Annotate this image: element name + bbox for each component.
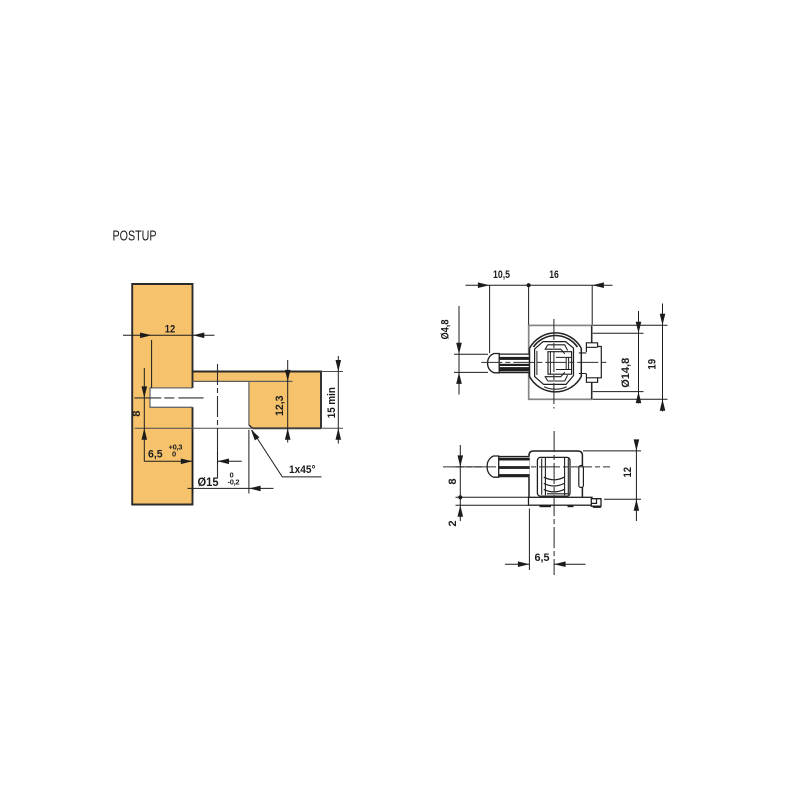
svg-text:10,5: 10,5	[493, 269, 510, 281]
svg-text:12,3: 12,3	[274, 395, 286, 416]
svg-text:16: 16	[549, 269, 559, 281]
svg-text:Ø14,8: Ø14,8	[620, 358, 632, 388]
svg-text:15 min: 15 min	[326, 387, 338, 418]
svg-text:-0,2: -0,2	[228, 478, 240, 487]
svg-text:6,5: 6,5	[535, 552, 550, 564]
svg-text:Ø15: Ø15	[198, 475, 219, 489]
svg-text:0: 0	[172, 450, 176, 459]
svg-text:1x45°: 1x45°	[289, 464, 316, 476]
svg-text:8: 8	[447, 478, 459, 484]
svg-text:8: 8	[131, 411, 143, 417]
svg-text:6,5: 6,5	[148, 449, 163, 461]
svg-text:12: 12	[622, 467, 634, 478]
svg-text:12: 12	[165, 324, 176, 336]
svg-text:19: 19	[646, 359, 658, 370]
svg-text:POSTUP: POSTUP	[113, 227, 157, 244]
svg-text:Ø4,8: Ø4,8	[440, 320, 452, 340]
svg-text:2: 2	[447, 520, 459, 526]
